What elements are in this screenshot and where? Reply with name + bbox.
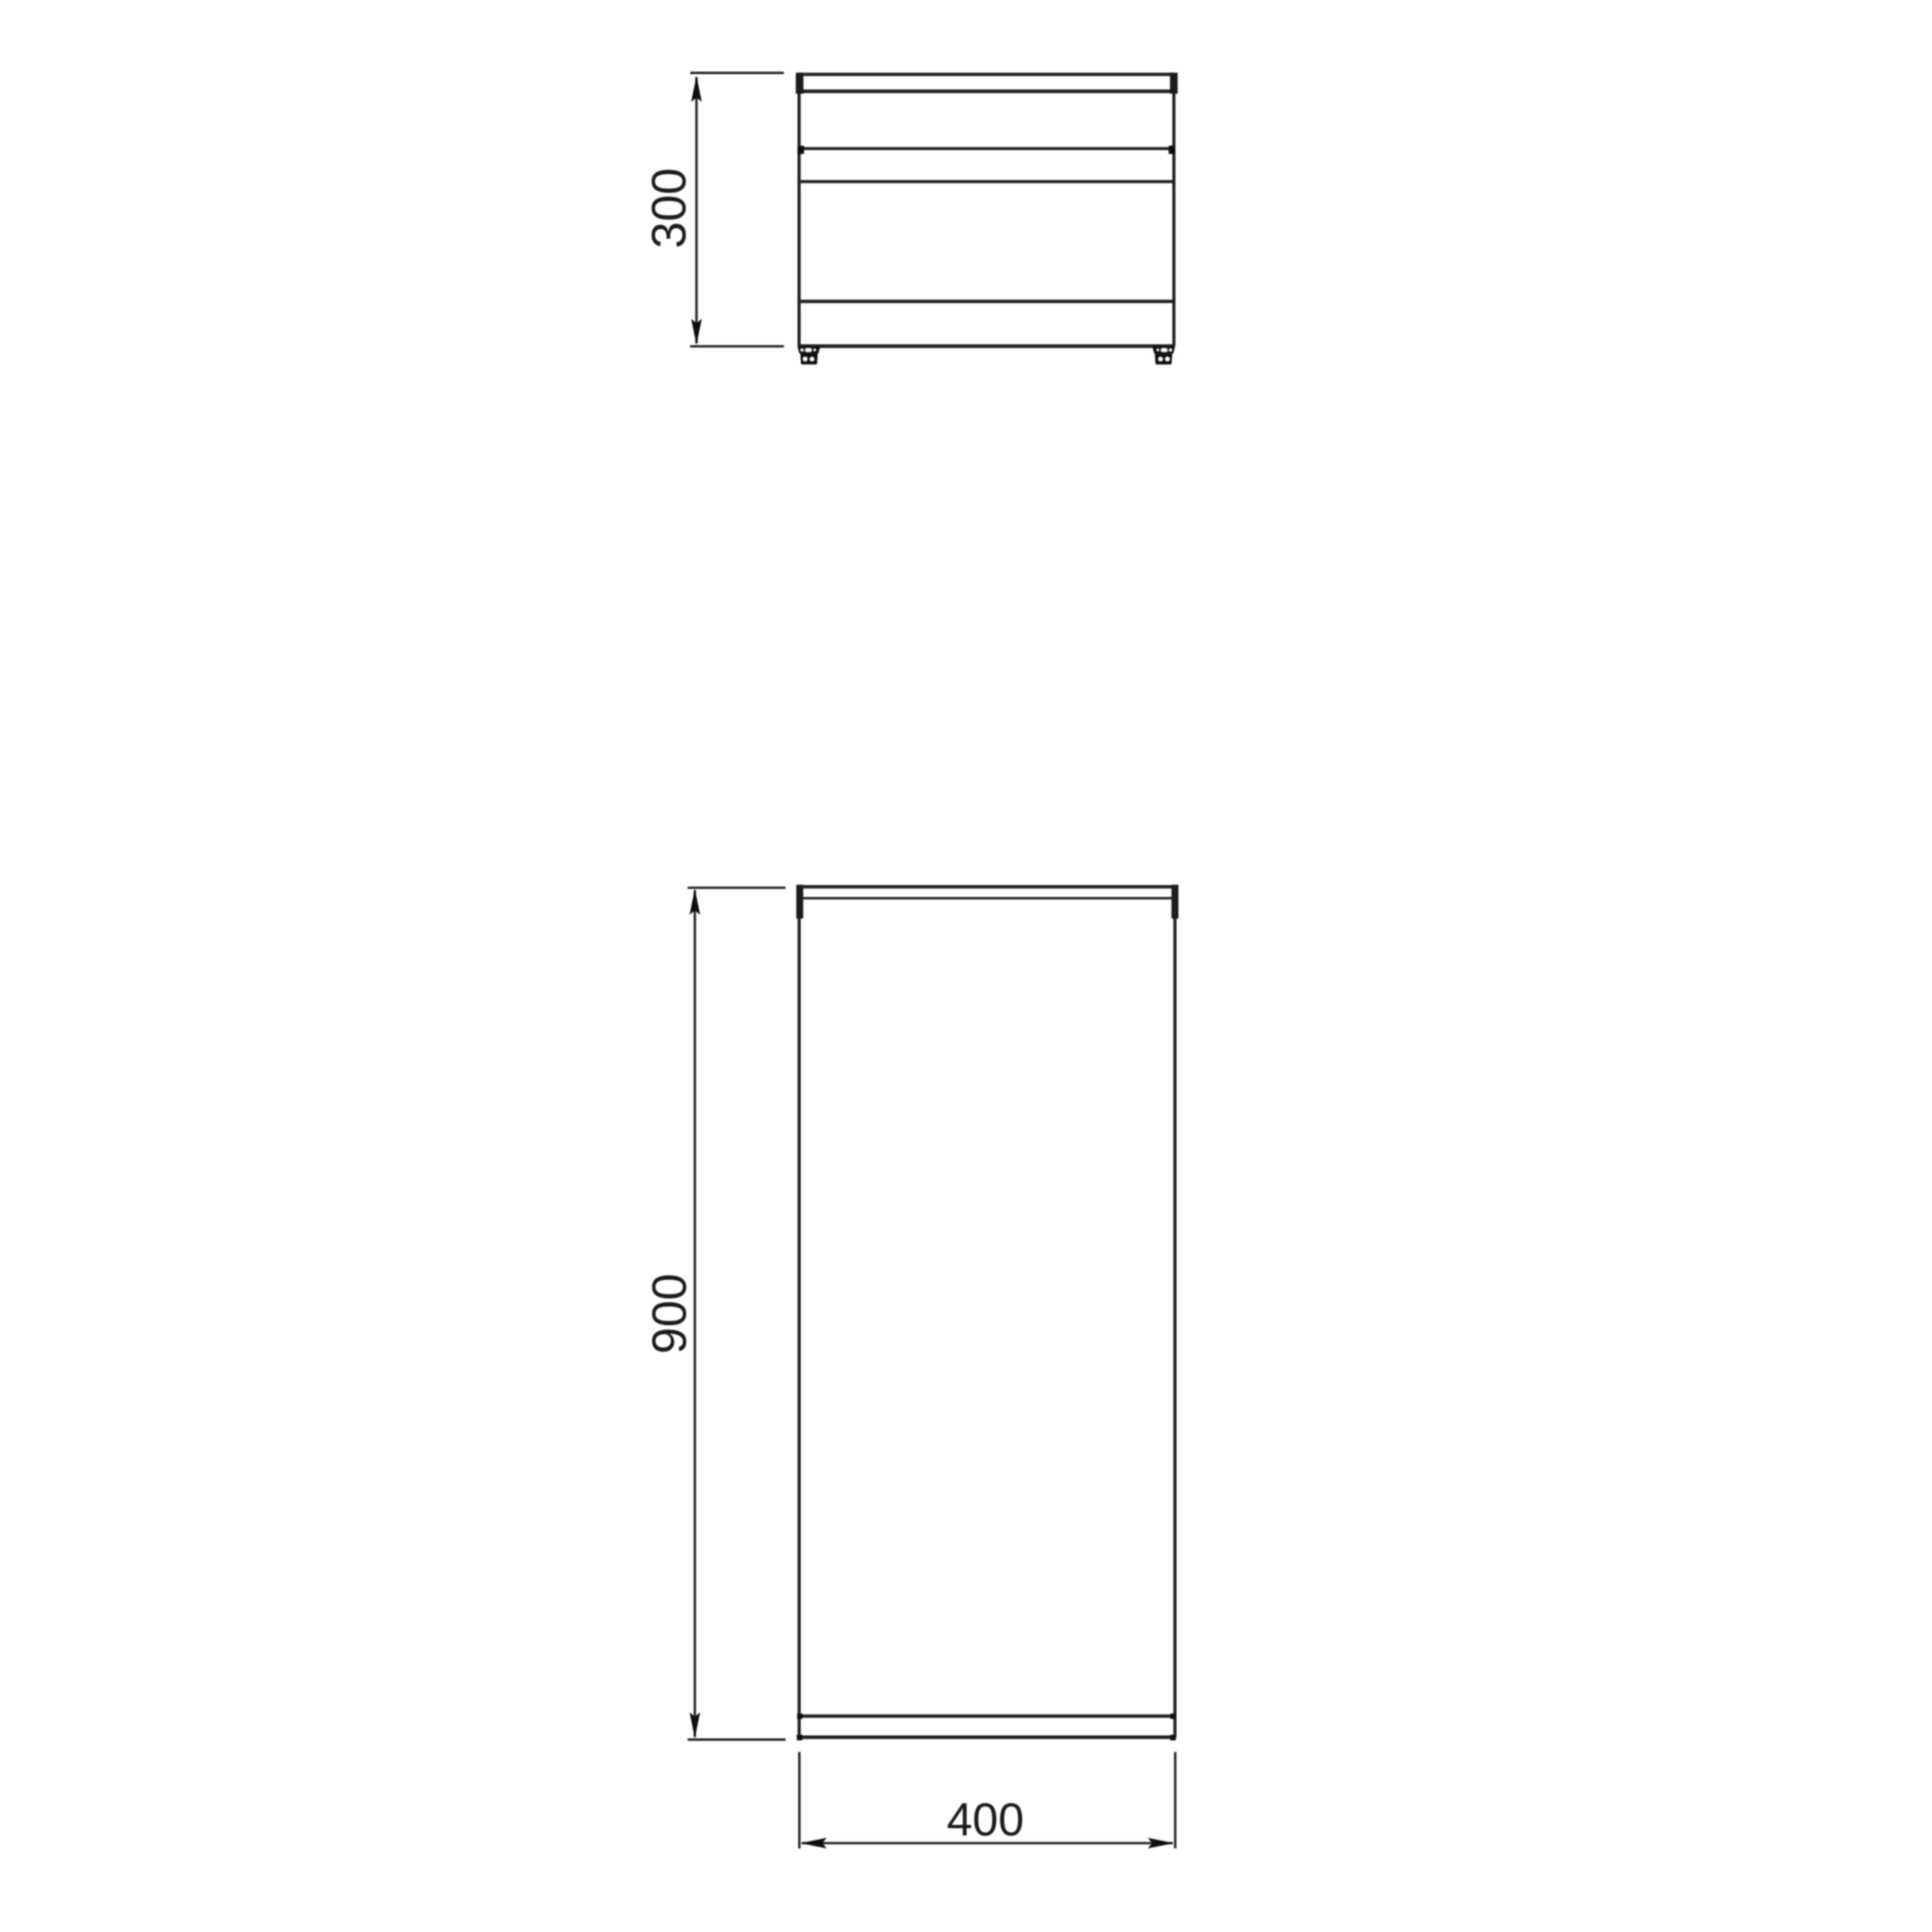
- svg-text:900: 900: [642, 1273, 696, 1353]
- svg-text:300: 300: [642, 168, 696, 248]
- svg-text:400: 400: [947, 1795, 1024, 1846]
